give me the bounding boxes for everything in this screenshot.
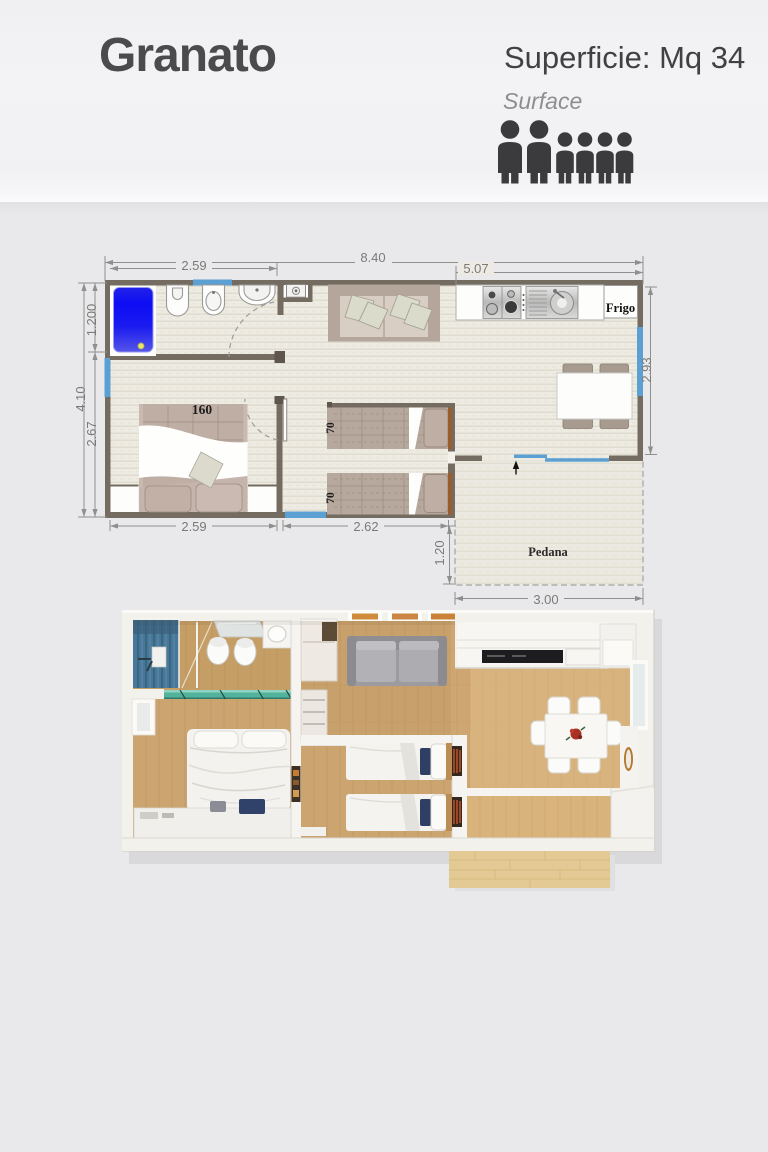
svg-text:70: 70 bbox=[325, 422, 337, 434]
svg-text:1.20: 1.20 bbox=[432, 540, 447, 565]
svg-text:Frigo: Frigo bbox=[606, 301, 635, 315]
svg-text:70: 70 bbox=[325, 492, 337, 504]
svg-text:2.62: 2.62 bbox=[353, 519, 378, 534]
svg-text:5.07: 5.07 bbox=[463, 261, 488, 276]
svg-text:1.200: 1.200 bbox=[84, 304, 99, 337]
svg-text:2.93: 2.93 bbox=[639, 357, 654, 382]
svg-text:Pedana: Pedana bbox=[528, 545, 568, 559]
svg-text:2.59: 2.59 bbox=[181, 258, 206, 273]
svg-text:4.10: 4.10 bbox=[73, 386, 88, 411]
svg-text:160: 160 bbox=[192, 402, 213, 417]
svg-text:2.67: 2.67 bbox=[84, 421, 99, 446]
svg-text:3.00: 3.00 bbox=[533, 592, 558, 607]
svg-text:2.59: 2.59 bbox=[181, 519, 206, 534]
svg-text:8.40: 8.40 bbox=[360, 250, 385, 265]
